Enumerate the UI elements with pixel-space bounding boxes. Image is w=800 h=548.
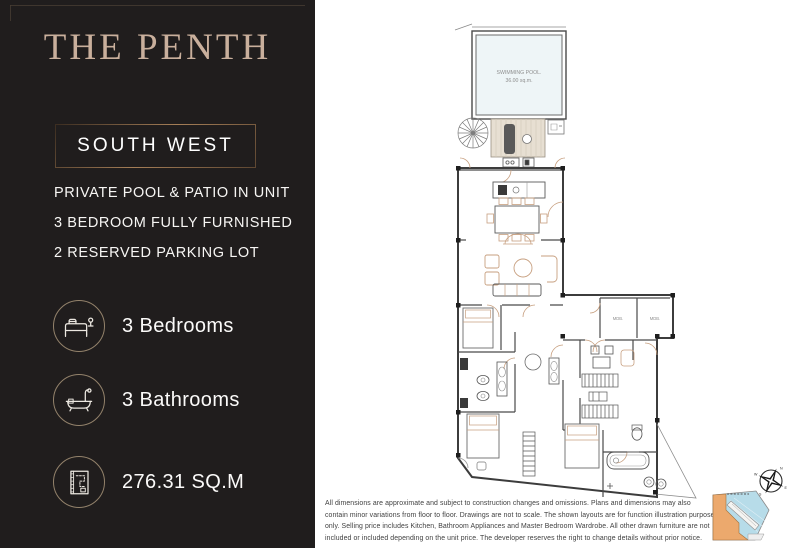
orientation-badge: SOUTH WEST [55, 124, 256, 168]
stat-circle [53, 456, 105, 508]
living-furniture [485, 182, 557, 296]
feature-item: 2 RESERVED PARKING LOT [54, 238, 292, 268]
bed-icon [61, 308, 97, 344]
room-label-mdb: MDB. [613, 316, 623, 321]
patio-table [523, 135, 532, 144]
stat-label: 3 Bathrooms [122, 389, 240, 412]
feature-item: PRIVATE POOL & PATIO IN UNIT [54, 178, 292, 208]
room-label-mdb: MDB. [650, 316, 660, 321]
disclaimer-text: All dimensions are approximate and subje… [325, 498, 715, 544]
orientation-label: SOUTH WEST [77, 135, 234, 157]
feature-item: 3 BEDROOM FULLY FURNISHED [54, 208, 292, 238]
info-panel: THE PENTH SOUTH WEST PRIVATE POOL & PATI… [0, 0, 315, 548]
floor-plan-icon [61, 464, 97, 500]
compass-n: N [780, 467, 783, 471]
patio-deck [491, 119, 564, 157]
stat-label: 276.31 SQ.M [122, 471, 244, 494]
stat-circle [53, 300, 105, 352]
pool-label: SWIMMING POOL. [497, 70, 542, 76]
decor-frame-line [10, 5, 305, 6]
pool-area-label: 36.00 sq.m. [505, 78, 532, 84]
stat-bedrooms: 3 Bedrooms [53, 300, 234, 352]
ledge [655, 424, 696, 498]
compass-w: W [754, 473, 758, 477]
spiral-stair [458, 118, 488, 148]
stat-bathrooms: 3 Bathrooms [53, 374, 240, 426]
outdoor-kitchenette [503, 158, 534, 167]
stat-label: 3 Bedrooms [122, 315, 234, 338]
lounge-chair [504, 124, 515, 154]
floor-plan: SWIMMING POOL. 36.00 sq.m. [315, 0, 800, 548]
bathtub-icon [61, 382, 97, 418]
site-key-map [710, 488, 772, 546]
penthouse-flyer: THE PENTH SOUTH WEST PRIVATE POOL & PATI… [0, 0, 800, 548]
compass-e: E [785, 486, 788, 490]
stat-area: 276.31 SQ.M [53, 456, 244, 508]
decor-frame-line [10, 5, 11, 21]
feature-list: PRIVATE POOL & PATIO IN UNIT 3 BEDROOM F… [54, 178, 292, 268]
stat-circle [53, 374, 105, 426]
brand-title: THE PENTH [0, 26, 315, 69]
